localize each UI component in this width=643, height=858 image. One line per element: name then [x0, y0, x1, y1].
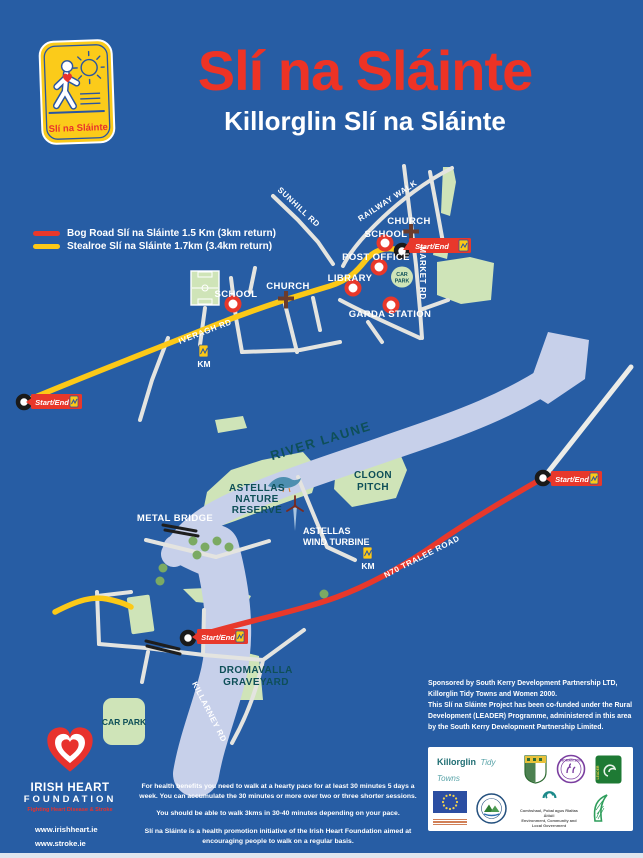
cloon-pitch-label-1: CLOON: [354, 470, 392, 481]
market-rd-label: MARKET RD: [418, 246, 427, 299]
post-office-label: POST OFFICE: [342, 252, 410, 263]
green-building: [127, 595, 155, 635]
environment-dept-logo: Comhshaol, Pobal agus Rialtas Áitiúil En…: [516, 787, 582, 829]
car-park-town-label-1: CAR: [396, 272, 408, 278]
ihf-url-stroke: www.stroke.ie: [35, 837, 120, 851]
cloon-pitch-label-2: PITCH: [357, 482, 389, 493]
start-end-badge-south: Start/End: [192, 629, 248, 644]
church-west-cross-icon: [278, 291, 294, 309]
woman-2000-logo-icon: WOMAN 2000: [556, 754, 586, 784]
skdp-logo-icon: [476, 793, 507, 824]
green-strip-river: [215, 416, 247, 433]
stealroe-route-swatch: [33, 244, 60, 249]
library-label: LIBRARY: [328, 273, 373, 284]
irish-heart-foundation-block: IRISH HEART FOUNDATION Fighting Heart Di…: [20, 724, 120, 852]
stealroe-route-yellow-south: [55, 598, 131, 612]
n70-label: N70 TRALEE ROAD: [383, 534, 462, 580]
green-areas: [103, 167, 494, 745]
nature-reserve-label-3: RESERVE: [232, 505, 282, 516]
km-marker-n70: KM: [361, 547, 374, 571]
graveyard-label-1: DROMAVALLA: [219, 665, 293, 676]
metal-bridge-label: METAL BRIDGE: [137, 513, 213, 524]
health-paragraph-3: Slí na Sláinte is a health promotion ini…: [133, 827, 423, 847]
church-west-label: CHURCH: [266, 281, 310, 292]
km-label: KM: [197, 359, 210, 369]
stealroe-route-label: Stealroe Slí na Sláinte 1.7km (3.4km ret…: [67, 241, 272, 252]
poster: Start/End Start/End Start/End Start/End …: [0, 0, 643, 858]
ihf-name-line2: FOUNDATION: [20, 794, 120, 805]
car-park-town-label-2: PARK: [395, 279, 410, 285]
eu-flag-logo: [433, 791, 467, 826]
health-paragraph-1: For health benefits you need to walk at …: [133, 782, 423, 802]
leader-label: LEADER: [596, 765, 600, 779]
nature-reserve-label-2: NATURE: [235, 494, 278, 505]
page-title: Slí na Sláinte: [95, 38, 635, 103]
start-end-label: Start/End: [35, 398, 69, 407]
legend-row-bog-road: Bog Road Slí na Sláinte 1.5 Km (3km retu…: [33, 227, 276, 240]
km-marker-iveragh: KM: [197, 345, 210, 369]
start-end-label: Start/End: [201, 633, 235, 642]
ihf-url-irishheart: www.irishheart.ie: [35, 823, 120, 837]
sponsor-text: Sponsored by South Kerry Development Par…: [428, 678, 641, 733]
ihf-tagline: Fighting Heart Disease & Stroke: [20, 807, 120, 813]
killorglin-crest-icon: [524, 755, 547, 784]
eu-caption-bar: [433, 824, 467, 826]
nature-reserve-label-1: ASTELLAS: [229, 483, 285, 494]
school-west-label: SCHOOL: [214, 289, 257, 300]
bog-road-route-label: Bog Road Slí na Sláinte 1.5 Km (3km retu…: [67, 228, 276, 239]
legend-row-stealroe: Stealroe Slí na Sláinte 1.7km (3.4km ret…: [33, 240, 276, 253]
health-benefits-text: For health benefits you need to walk at …: [133, 782, 423, 854]
killorglin-label: Killorglin: [437, 757, 476, 767]
sponsor-paragraph-1: Sponsored by South Kerry Development Par…: [428, 678, 641, 700]
ihf-urls: www.irishheart.ie www.stroke.ie: [20, 823, 120, 852]
church-town-label: CHURCH: [387, 216, 431, 227]
leader-logo-icon: LEADER: [595, 755, 622, 784]
harp-icon: [591, 793, 609, 824]
wind-turbine-icon: [287, 496, 303, 531]
page-subtitle: Killorglin Slí na Sláinte: [95, 106, 635, 137]
endpoint-east: [537, 472, 549, 484]
eu-flag-icon: [433, 791, 467, 813]
endpoint-south: [182, 632, 194, 644]
killorglin-tidy-towns-logo: Killorglin Tidy Towns: [437, 753, 515, 785]
start-end-label: Start/End: [555, 475, 589, 484]
sponsor-paragraph-2: This Slí na Sláinte Project has been co-…: [428, 700, 641, 733]
km-label: KM: [361, 561, 374, 571]
wind-turbine-label-2: WIND TURBINE: [303, 537, 370, 547]
ihf-name-line1: IRISH HEART: [20, 782, 120, 794]
start-end-badge-west: Start/End: [26, 394, 82, 409]
sponsor-logo-box: Killorglin Tidy Towns WOMAN 2000 LEADER: [428, 747, 633, 831]
bottom-edge-strip: [0, 853, 643, 858]
logo-row-top: Killorglin Tidy Towns WOMAN 2000 LEADER: [433, 751, 628, 787]
environment-dept-line2: Environment, Community and Local Governm…: [516, 819, 582, 829]
garda-station-label: GARDA STATION: [349, 309, 432, 320]
start-end-badge-town: Start/End: [403, 238, 471, 253]
health-paragraph-2: You should be able to walk 3kms in 30-40…: [133, 809, 423, 819]
heart-logo-icon: [43, 724, 97, 774]
green-patch-large: [437, 257, 494, 304]
school-town-label: SCHOOL: [364, 229, 407, 240]
eu-caption-bar: [433, 819, 467, 821]
route-legend: Bog Road Slí na Sláinte 1.5 Km (3km retu…: [33, 227, 276, 253]
graveyard-label-2: GRAVEYARD: [223, 677, 289, 688]
bog-road-route-swatch: [33, 231, 60, 236]
start-end-badge-east: Start/End: [546, 471, 602, 486]
logo-row-bottom: Comhshaol, Pobal agus Rialtas Áitiúil En…: [433, 789, 628, 827]
woman-2000-label: WOMAN 2000: [560, 759, 582, 763]
environment-dept-icon: [541, 787, 558, 804]
wind-turbine-label-1: ASTELLAS: [303, 526, 351, 536]
eu-caption-bar: [433, 821, 467, 823]
